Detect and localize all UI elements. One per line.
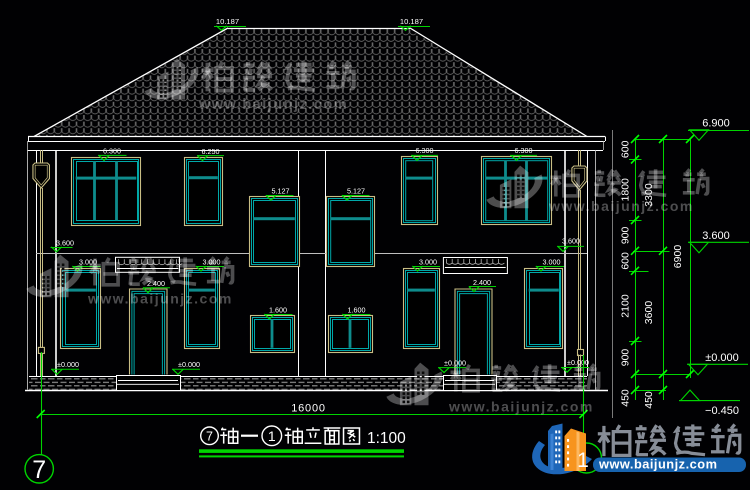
svg-text:900: 900 (620, 226, 632, 244)
svg-text:±0.000: ±0.000 (178, 360, 200, 369)
svg-text:5.127: 5.127 (272, 187, 290, 196)
svg-text:2100: 2100 (620, 294, 632, 318)
svg-text:7: 7 (206, 430, 213, 444)
svg-text:6.300: 6.300 (416, 146, 434, 155)
svg-text:±0.000: ±0.000 (705, 352, 739, 364)
svg-text:2.400: 2.400 (473, 278, 491, 287)
svg-text:www.baijunjz.com: www.baijunjz.com (198, 97, 348, 113)
svg-text:1: 1 (268, 428, 276, 444)
svg-text:600: 600 (620, 140, 632, 158)
svg-text:450: 450 (620, 389, 632, 407)
svg-text:7: 7 (32, 456, 46, 484)
svg-text:6.250: 6.250 (202, 147, 220, 156)
svg-text:3.000: 3.000 (419, 257, 437, 266)
svg-text:1:100: 1:100 (367, 430, 406, 447)
svg-text:6.300: 6.300 (515, 146, 533, 155)
svg-text:900: 900 (620, 349, 632, 367)
svg-text:1.600: 1.600 (269, 306, 287, 315)
svg-text:3.600: 3.600 (702, 230, 730, 242)
svg-text:www.baijunjz.com: www.baijunjz.com (548, 198, 694, 214)
svg-text:6.900: 6.900 (702, 117, 730, 129)
svg-text:www.baijunjz.com: www.baijunjz.com (87, 291, 233, 307)
svg-text:1: 1 (577, 449, 589, 472)
svg-text:600: 600 (620, 252, 632, 270)
svg-text:3.600: 3.600 (56, 238, 74, 247)
svg-text:6900: 6900 (672, 245, 684, 269)
svg-text:−0.450: −0.450 (705, 405, 739, 417)
svg-text:www.baijunjz.com: www.baijunjz.com (598, 457, 717, 472)
svg-text:3600: 3600 (643, 301, 655, 325)
svg-text:±0.000: ±0.000 (57, 360, 79, 369)
svg-text:www.baijunjz.com: www.baijunjz.com (448, 399, 594, 415)
svg-text:3.000: 3.000 (543, 257, 561, 266)
svg-text:10.187: 10.187 (400, 17, 423, 26)
svg-text:3.600: 3.600 (562, 236, 580, 245)
svg-text:10.187: 10.187 (216, 17, 239, 26)
svg-text:16000: 16000 (291, 403, 326, 415)
svg-text:6.300: 6.300 (103, 147, 121, 156)
svg-text:450: 450 (643, 391, 655, 409)
svg-text:1.600: 1.600 (348, 306, 366, 315)
svg-text:5.127: 5.127 (347, 187, 365, 196)
